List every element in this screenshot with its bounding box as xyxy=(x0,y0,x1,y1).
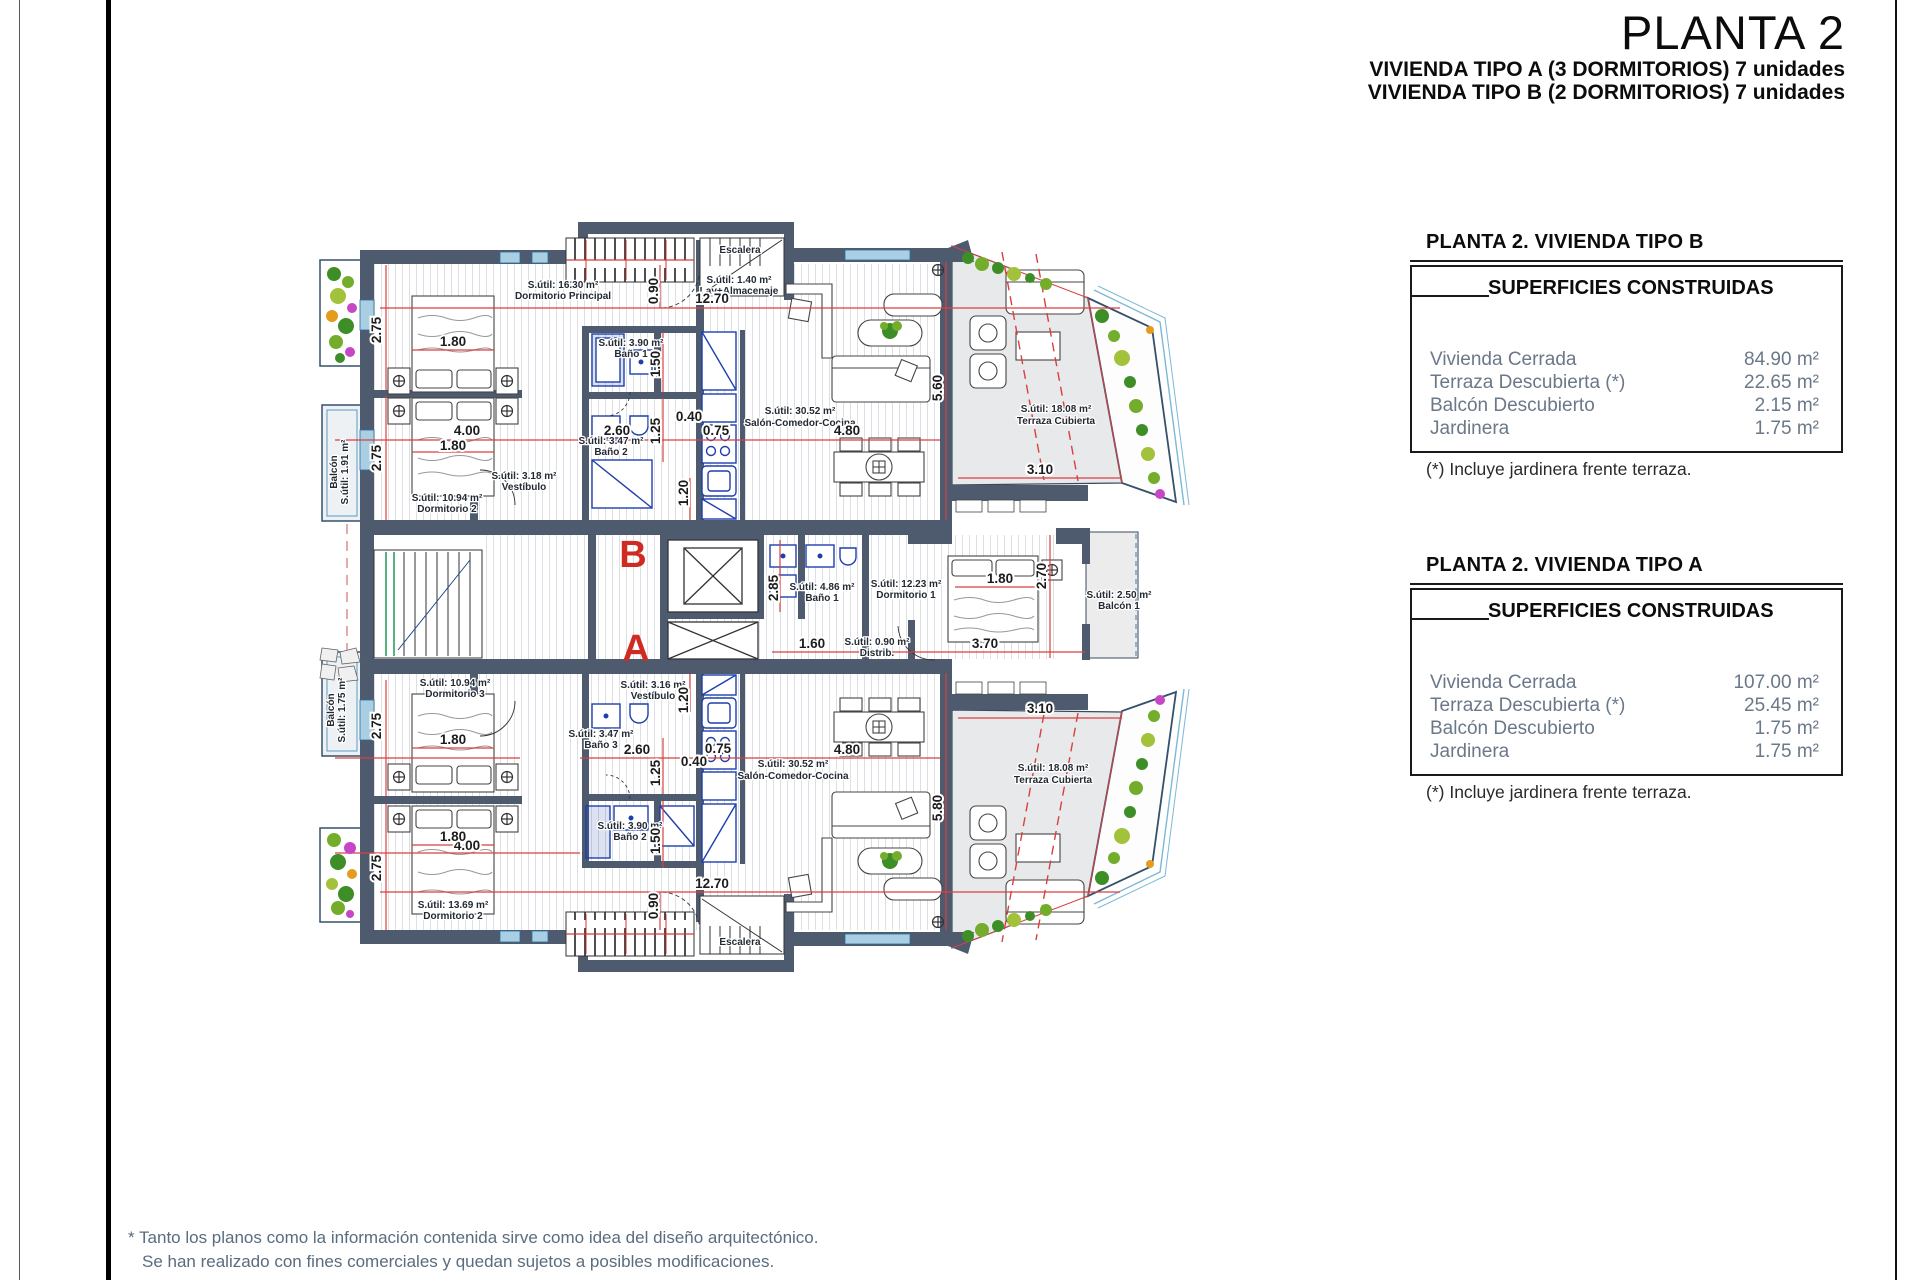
table-row: Jardinera1.75 m² xyxy=(1430,417,1819,440)
superficies-title-b: SUPERFICIES CONSTRUIDAS xyxy=(1488,277,1841,300)
svg-text:Vestíbulo: Vestíbulo xyxy=(502,482,546,493)
svg-text:Baño 2: Baño 2 xyxy=(613,832,647,843)
area-table-tipo-b: PLANTA 2. VIVIENDA TIPO B SUPERFICIES CO… xyxy=(1410,231,1843,480)
svg-text:2.60: 2.60 xyxy=(624,742,650,757)
svg-text:0.75: 0.75 xyxy=(703,423,730,438)
svg-text:1.20: 1.20 xyxy=(676,480,691,506)
svg-text:12.70: 12.70 xyxy=(695,291,729,306)
unit-letter-a: A xyxy=(622,628,649,670)
floor-plan: S.útil: 16.30 m² Dormitorio Principal S.… xyxy=(315,215,1205,975)
subtitle-tipo-a: VIVIENDA TIPO A (3 DORMITORIOS) 7 unidad… xyxy=(1200,58,1845,81)
disclaimer: * Tanto los planos como la información c… xyxy=(128,1226,818,1274)
svg-text:2.85: 2.85 xyxy=(766,574,781,601)
tab-line xyxy=(1412,618,1489,620)
svg-text:12.70: 12.70 xyxy=(695,876,729,891)
svg-text:Terraza Cubierta: Terraza Cubierta xyxy=(1014,775,1093,786)
room-label-escalera-top: Escalera xyxy=(719,245,761,256)
svg-text:2.75: 2.75 xyxy=(369,316,384,343)
svg-text:Salón-Comedor-Cocina: Salón-Comedor-Cocina xyxy=(737,771,849,782)
room-label-dormitorio3-a: S.útil: 10.94 m² xyxy=(420,678,491,689)
frame-line-right xyxy=(1895,0,1897,1280)
svg-text:Balcón 1: Balcón 1 xyxy=(1098,601,1140,612)
footnote-a: (*) Incluye jardinera frente terraza. xyxy=(1410,782,1843,803)
room-label-escalera-bottom: Escalera xyxy=(719,937,761,948)
svg-text:Dormitorio Principal: Dormitorio Principal xyxy=(515,291,611,302)
room-label-salon-b: S.útil: 30.52 m² xyxy=(765,406,836,417)
room-label-terraza-a: S.útil: 18.08 m² xyxy=(1018,763,1089,774)
area-heading-tipo-a: PLANTA 2. VIVIENDA TIPO A xyxy=(1410,554,1843,585)
svg-text:S.útil: 1.75 m²: S.útil: 1.75 m² xyxy=(337,677,348,743)
area-heading-tipo-b: PLANTA 2. VIVIENDA TIPO B xyxy=(1410,231,1843,262)
room-label-dormitorio2-a: S.útil: 13.69 m² xyxy=(418,900,489,911)
table-row: Vivienda Cerrada84.90 m² xyxy=(1430,348,1819,371)
superficies-title-a: SUPERFICIES CONSTRUIDAS xyxy=(1488,600,1841,623)
svg-text:2.60: 2.60 xyxy=(604,423,630,438)
svg-text:Dormitorio 2: Dormitorio 2 xyxy=(423,911,483,922)
svg-text:1.60: 1.60 xyxy=(799,636,825,651)
svg-text:0.75: 0.75 xyxy=(705,741,732,756)
svg-text:1.80: 1.80 xyxy=(440,334,466,349)
svg-text:1.80: 1.80 xyxy=(440,732,466,747)
svg-text:Baño 1: Baño 1 xyxy=(805,593,839,604)
svg-text:1.20: 1.20 xyxy=(676,687,691,713)
svg-text:1.50: 1.50 xyxy=(648,351,663,377)
area-table-tipo-a: PLANTA 2. VIVIENDA TIPO A SUPERFICIES CO… xyxy=(1410,554,1843,803)
room-label-dormitorio1-a: S.útil: 12.23 m² xyxy=(871,579,942,590)
table-row: Vivienda Cerrada107.00 m² xyxy=(1430,671,1819,694)
frame-line-left-thin xyxy=(19,0,20,1280)
svg-text:Distrib.: Distrib. xyxy=(860,648,895,659)
svg-text:4.00: 4.00 xyxy=(454,423,480,438)
svg-text:0.40: 0.40 xyxy=(676,409,702,424)
room-label-vestibulo-b: S.útil: 3.18 m² xyxy=(491,471,557,482)
room-label-salon-a: S.útil: 30.52 m² xyxy=(758,759,829,770)
table-row: Terraza Descubierta (*)25.45 m² xyxy=(1430,694,1819,717)
room-label-lav: S.útil: 1.40 m² xyxy=(706,275,772,286)
svg-text:Vestíbulo: Vestíbulo xyxy=(631,691,675,702)
svg-text:Dormitorio 1: Dormitorio 1 xyxy=(876,590,936,601)
unit-letter-b: B xyxy=(619,534,646,576)
svg-text:Terraza Cubierta: Terraza Cubierta xyxy=(1017,416,1096,427)
svg-text:0.40: 0.40 xyxy=(681,754,707,769)
svg-text:4.80: 4.80 xyxy=(834,742,860,757)
svg-text:0.90: 0.90 xyxy=(646,278,661,304)
svg-text:1.80: 1.80 xyxy=(440,829,466,844)
svg-text:2.75: 2.75 xyxy=(369,854,384,881)
superficies-box-b: SUPERFICIES CONSTRUIDAS Vivienda Cerrada… xyxy=(1410,265,1843,453)
room-label-bano1-a: S.útil: 4.86 m² xyxy=(789,582,855,593)
svg-text:Dormitorio 2: Dormitorio 2 xyxy=(417,504,477,515)
svg-text:1.25: 1.25 xyxy=(648,759,663,786)
svg-text:Dormitorio 3: Dormitorio 3 xyxy=(425,689,485,700)
svg-text:3.10: 3.10 xyxy=(1027,462,1053,477)
room-label-balcon-b: Balcón xyxy=(329,455,340,488)
room-label-balcon1-a: S.útil: 2.50 m² xyxy=(1086,590,1152,601)
room-label-bano3-a: S.útil: 3.47 m² xyxy=(568,729,634,740)
svg-text:1.50: 1.50 xyxy=(648,828,663,854)
subtitle-tipo-b: VIVIENDA TIPO B (2 DORMITORIOS) 7 unidad… xyxy=(1200,81,1845,104)
svg-text:1.25: 1.25 xyxy=(648,417,663,444)
svg-text:2.75: 2.75 xyxy=(369,712,384,739)
room-label-terraza-b: S.útil: 18.08 m² xyxy=(1021,404,1092,415)
svg-text:S.útil: 1.91 m²: S.útil: 1.91 m² xyxy=(340,439,351,505)
superficies-box-a: SUPERFICIES CONSTRUIDAS Vivienda Cerrada… xyxy=(1410,588,1843,776)
elevator-core xyxy=(668,540,758,659)
table-row: Jardinera1.75 m² xyxy=(1430,740,1819,763)
room-label-bano1-b: S.útil: 3.90 m² xyxy=(598,338,664,349)
room-label-distrib: S.útil: 0.90 m² xyxy=(844,637,910,648)
svg-text:4.80: 4.80 xyxy=(834,423,860,438)
svg-text:3.10: 3.10 xyxy=(1027,701,1053,716)
svg-text:Baño 3: Baño 3 xyxy=(584,740,618,751)
drawing-sheet: PLANTA 2 VIVIENDA TIPO A (3 DORMITORIOS)… xyxy=(0,0,1920,1280)
svg-text:5.60: 5.60 xyxy=(930,375,945,401)
footnote-b: (*) Incluye jardinera frente terraza. xyxy=(1410,459,1843,480)
svg-text:1.80: 1.80 xyxy=(987,571,1013,586)
svg-text:0.90: 0.90 xyxy=(646,893,661,919)
svg-text:3.70: 3.70 xyxy=(972,636,998,651)
svg-text:2.70: 2.70 xyxy=(1034,563,1049,589)
room-label-dormitorio-principal: S.útil: 16.30 m² xyxy=(528,280,599,291)
svg-text:Baño 1: Baño 1 xyxy=(614,349,648,360)
table-row: Terraza Descubierta (*)22.65 m² xyxy=(1430,371,1819,394)
table-row: Balcón Descubierto1.75 m² xyxy=(1430,717,1819,740)
room-label-balcon-a: Balcón xyxy=(326,693,337,726)
svg-text:1.80: 1.80 xyxy=(440,438,466,453)
svg-text:Baño 2: Baño 2 xyxy=(594,447,628,458)
table-row: Balcón Descubierto2.15 m² xyxy=(1430,394,1819,417)
frame-line-left-thick xyxy=(106,0,111,1280)
tab-line xyxy=(1412,295,1489,297)
title-block: PLANTA 2 VIVIENDA TIPO A (3 DORMITORIOS)… xyxy=(1200,8,1845,104)
svg-text:2.75: 2.75 xyxy=(369,444,384,471)
svg-text:5.80: 5.80 xyxy=(930,795,945,821)
page-title: PLANTA 2 xyxy=(1200,8,1845,58)
room-label-dormitorio2-b: S.útil: 10.94 m² xyxy=(412,493,483,504)
